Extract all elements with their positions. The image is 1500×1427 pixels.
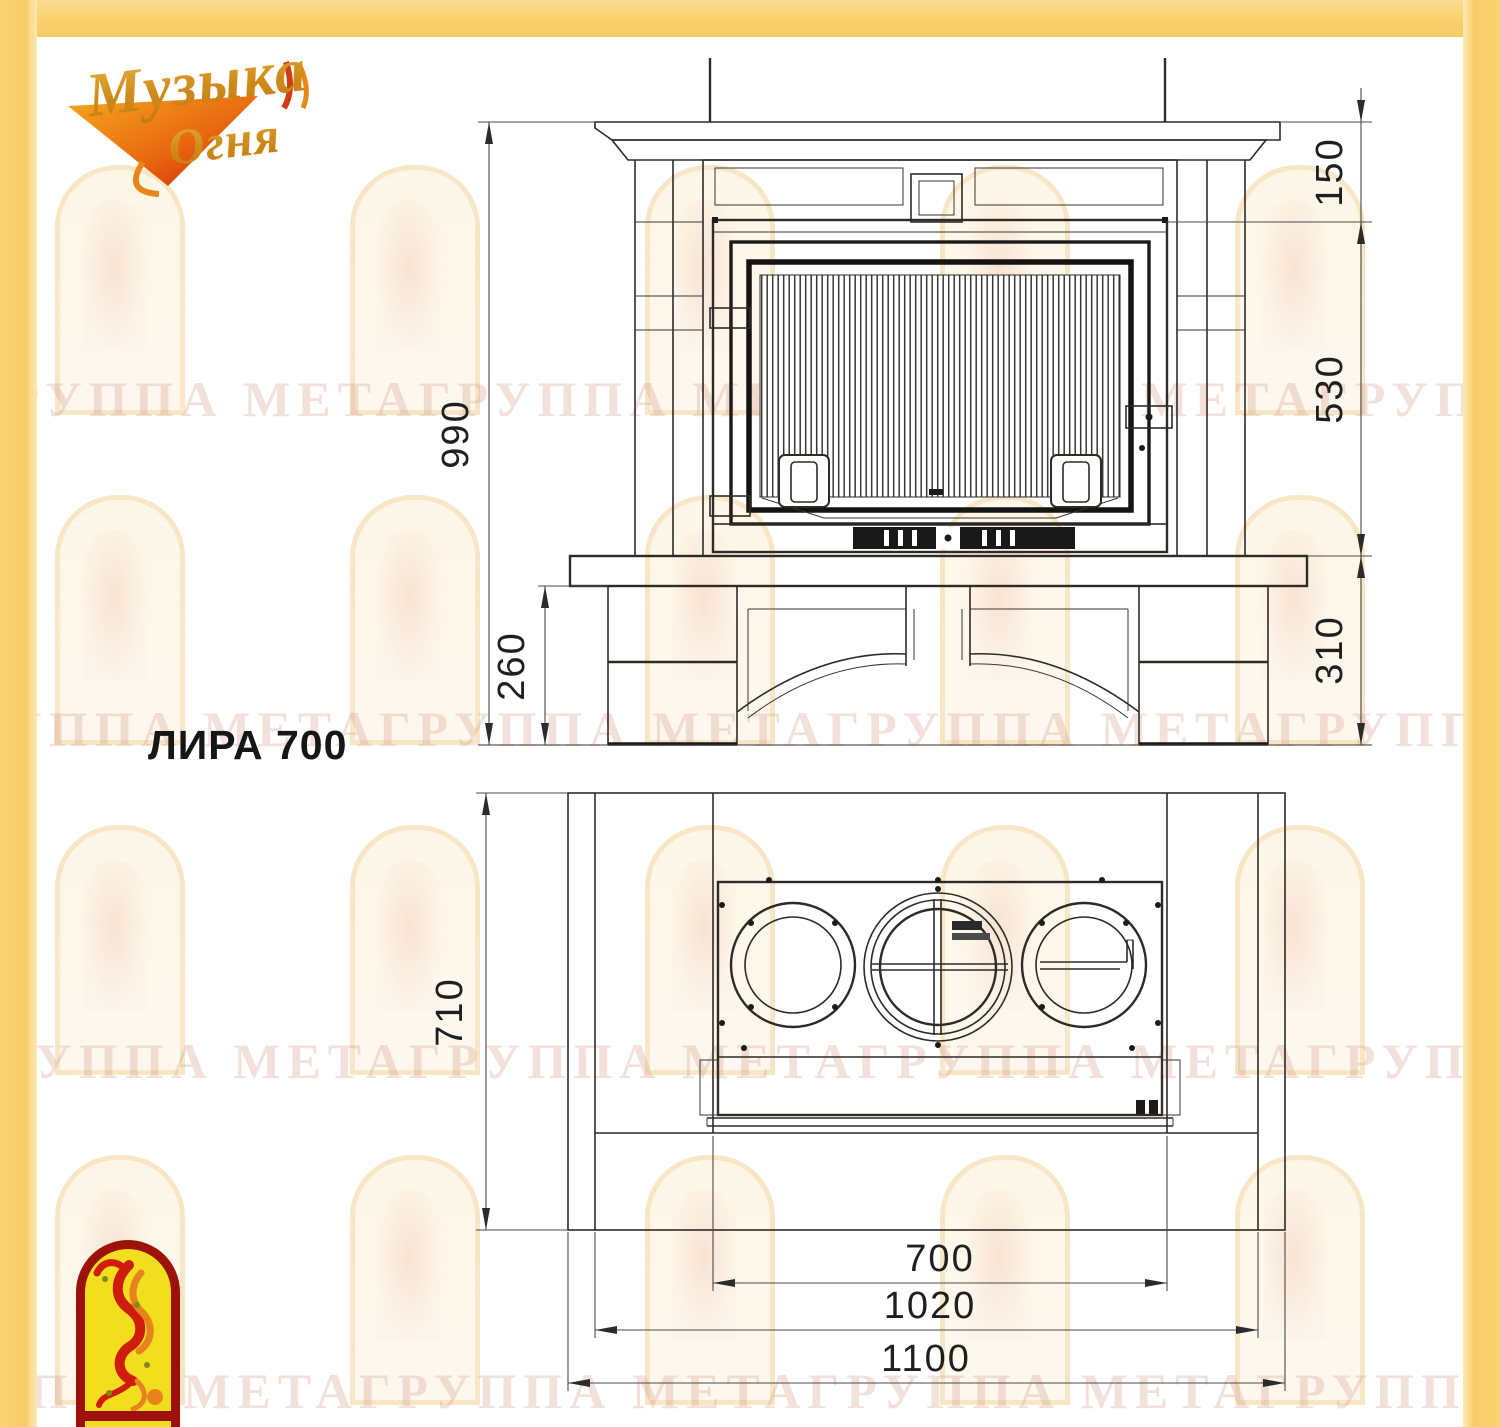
corner-arch-logo [76, 1240, 180, 1427]
dim-label-310: 310 [1309, 615, 1351, 684]
frame-top-band [0, 0, 1500, 37]
dim-label-260: 260 [491, 631, 533, 700]
dim-label-700: 700 [905, 1238, 974, 1280]
dim-label-990: 990 [435, 399, 477, 468]
dim-label-710: 710 [429, 977, 471, 1046]
front-view [478, 58, 1372, 745]
dim-label-1100: 1100 [881, 1338, 971, 1380]
dim-label-150: 150 [1309, 137, 1351, 206]
model-title: ЛИРА 700 [148, 722, 347, 769]
corner-logo-flame-figure-icon [85, 1249, 173, 1421]
plan-view [568, 793, 1285, 1230]
page: ГРУППА МЕТАГРУППА МЕТАГРУППА МЕТАГРУППА … [0, 0, 1500, 1427]
frame-left-band [0, 0, 37, 1427]
dim-label-530: 530 [1309, 354, 1351, 423]
brand-logo: Музыка Огня [48, 36, 408, 216]
frame-right-band [1463, 0, 1500, 1427]
dim-label-1020: 1020 [884, 1285, 977, 1327]
